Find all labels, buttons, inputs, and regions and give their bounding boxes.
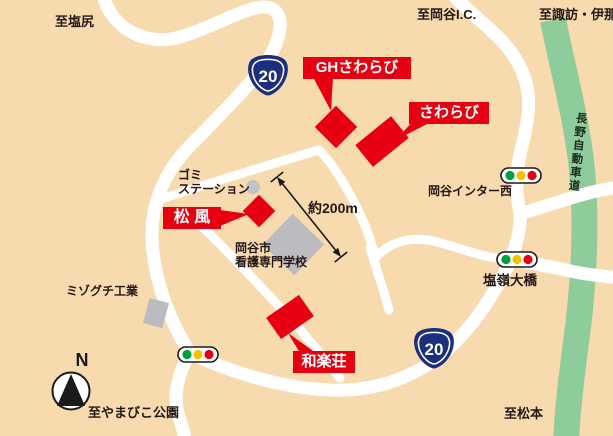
mizoguchi-label: ミゾグチ工業 bbox=[66, 284, 138, 298]
sawarabi-building bbox=[355, 116, 408, 167]
expressway-road bbox=[553, 20, 584, 436]
dest-yamabiko-park: 至やまびこ公園 bbox=[88, 405, 179, 420]
dest-shiojiri: 至塩尻 bbox=[55, 14, 94, 29]
matsukaze-building bbox=[243, 195, 276, 228]
facility-label-gh-sawarabi: GHさわらび bbox=[303, 57, 411, 79]
dest-matsumoto: 至松本 bbox=[504, 406, 543, 421]
traffic-light-icon-enrei bbox=[497, 252, 537, 267]
access-map: 20 20 N 至塩尻 至岡谷I.C. 至諏訪・伊那 至やまびこ公園 至松本 ゴ… bbox=[0, 0, 613, 436]
distance-label: 約200m bbox=[308, 200, 358, 217]
gomi-station-label: ゴミ ステーション bbox=[178, 168, 250, 196]
facility-label-matsukaze: 松 風 bbox=[163, 207, 221, 229]
route-number: 20 bbox=[425, 340, 444, 359]
compass-icon: N bbox=[53, 350, 90, 410]
facility-label-warakuso: 和楽荘 bbox=[293, 351, 355, 373]
mizoguchi-building bbox=[143, 298, 169, 328]
route-20-shield-icon-north: 20 bbox=[248, 55, 288, 95]
dest-suwa-ina: 至諏訪・伊那 bbox=[539, 7, 613, 22]
nursing-school-line2: 看護専門学校 bbox=[235, 255, 307, 269]
facility-label-sawarabi: さわらび bbox=[409, 102, 489, 124]
gh-sawarabi-building bbox=[315, 106, 357, 148]
traffic-light-icon-south bbox=[178, 347, 218, 362]
nursing-school-line1: 岡谷市 bbox=[235, 241, 307, 255]
traffic-light-icon-inter-west bbox=[501, 168, 541, 183]
compass-north-label: N bbox=[76, 350, 89, 370]
gomi-station-line2: ステーション bbox=[178, 182, 250, 196]
gomi-station-line1: ゴミ bbox=[178, 168, 250, 182]
route-number: 20 bbox=[259, 67, 278, 86]
nursing-school-label: 岡谷市 看護専門学校 bbox=[235, 241, 307, 269]
enrei-bridge-label: 塩嶺大橋 bbox=[483, 273, 537, 289]
dest-okaya-ic: 至岡谷I.C. bbox=[417, 7, 476, 22]
okaya-inter-west-label: 岡谷インター西 bbox=[428, 184, 512, 198]
